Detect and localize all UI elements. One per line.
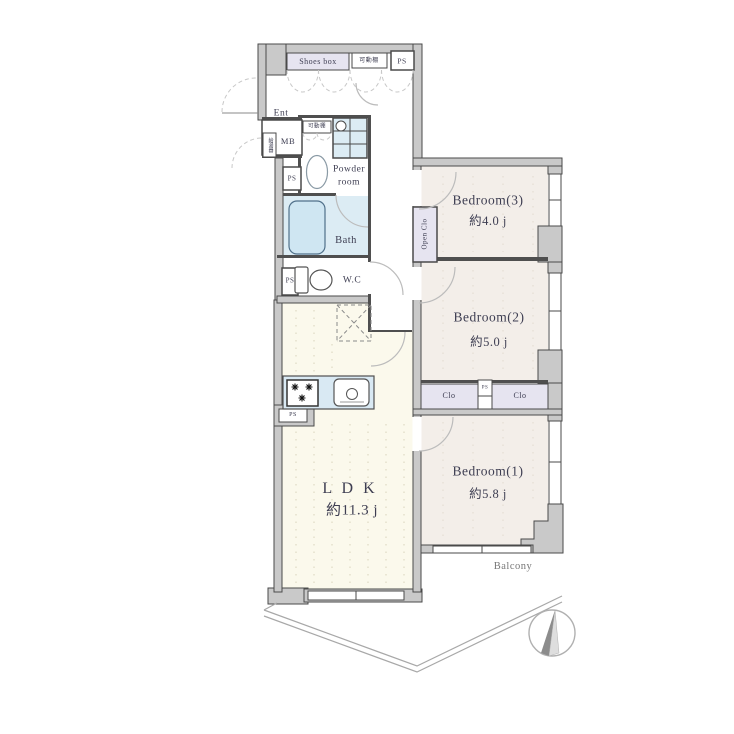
open-closet-box <box>413 207 437 262</box>
floorplan-page: Shoes box 可動棚 PS Ent MB 給湯器 可動棚 Powder r… <box>0 0 734 734</box>
shelf-door-arc <box>317 133 331 140</box>
compass-icon <box>529 610 575 656</box>
closet-left-box <box>421 384 478 409</box>
pillar-right-2 <box>538 350 562 383</box>
stove-icon <box>287 380 318 406</box>
shelf-door-arc <box>303 133 317 140</box>
wall-bedroom3-top <box>413 158 562 166</box>
wall-right-seg2 <box>548 262 562 273</box>
washer-icon <box>333 118 367 158</box>
bathtub-icon <box>289 201 325 254</box>
shoesbox-door-arc <box>287 70 319 92</box>
shoesbox-door-arc <box>350 70 382 92</box>
closet-right-box <box>492 384 548 409</box>
toilet-icon <box>295 267 332 293</box>
dashed-arcs <box>222 70 413 168</box>
ps-mid-box <box>478 380 492 396</box>
sink-icon <box>334 379 369 406</box>
wall-wc-bottom <box>277 296 370 303</box>
shelf-top-box <box>352 53 387 68</box>
water-heater-box <box>263 133 276 157</box>
wall-ldk-left <box>274 300 282 592</box>
floorplan-drawing <box>0 0 734 734</box>
wall-left-upper <box>258 44 266 120</box>
bedroom1-floor <box>421 414 548 545</box>
mb-door-arc <box>232 138 262 168</box>
entrance-door-arc <box>222 78 256 112</box>
shelf-mid-box <box>303 121 331 133</box>
wall-bedroom1-top <box>413 409 562 415</box>
powder-door-arc <box>356 83 378 105</box>
ps-top-box <box>391 51 414 70</box>
ldk-floor <box>282 303 413 590</box>
ps-left-box <box>283 167 301 190</box>
shoes-box <box>287 53 349 70</box>
wall-right-seg1 <box>548 166 562 174</box>
shoesbox-door-arc <box>382 70 414 92</box>
basin-icon <box>307 156 328 189</box>
wc-door-arc <box>370 262 403 295</box>
pillar-right-1 <box>538 226 562 262</box>
shoesbox-door-arc <box>319 70 351 92</box>
bedroom2-floor <box>421 261 548 381</box>
balcony-railing <box>264 596 562 672</box>
ps-kitchen-box <box>279 409 307 422</box>
bedroom3-floor <box>421 166 548 258</box>
